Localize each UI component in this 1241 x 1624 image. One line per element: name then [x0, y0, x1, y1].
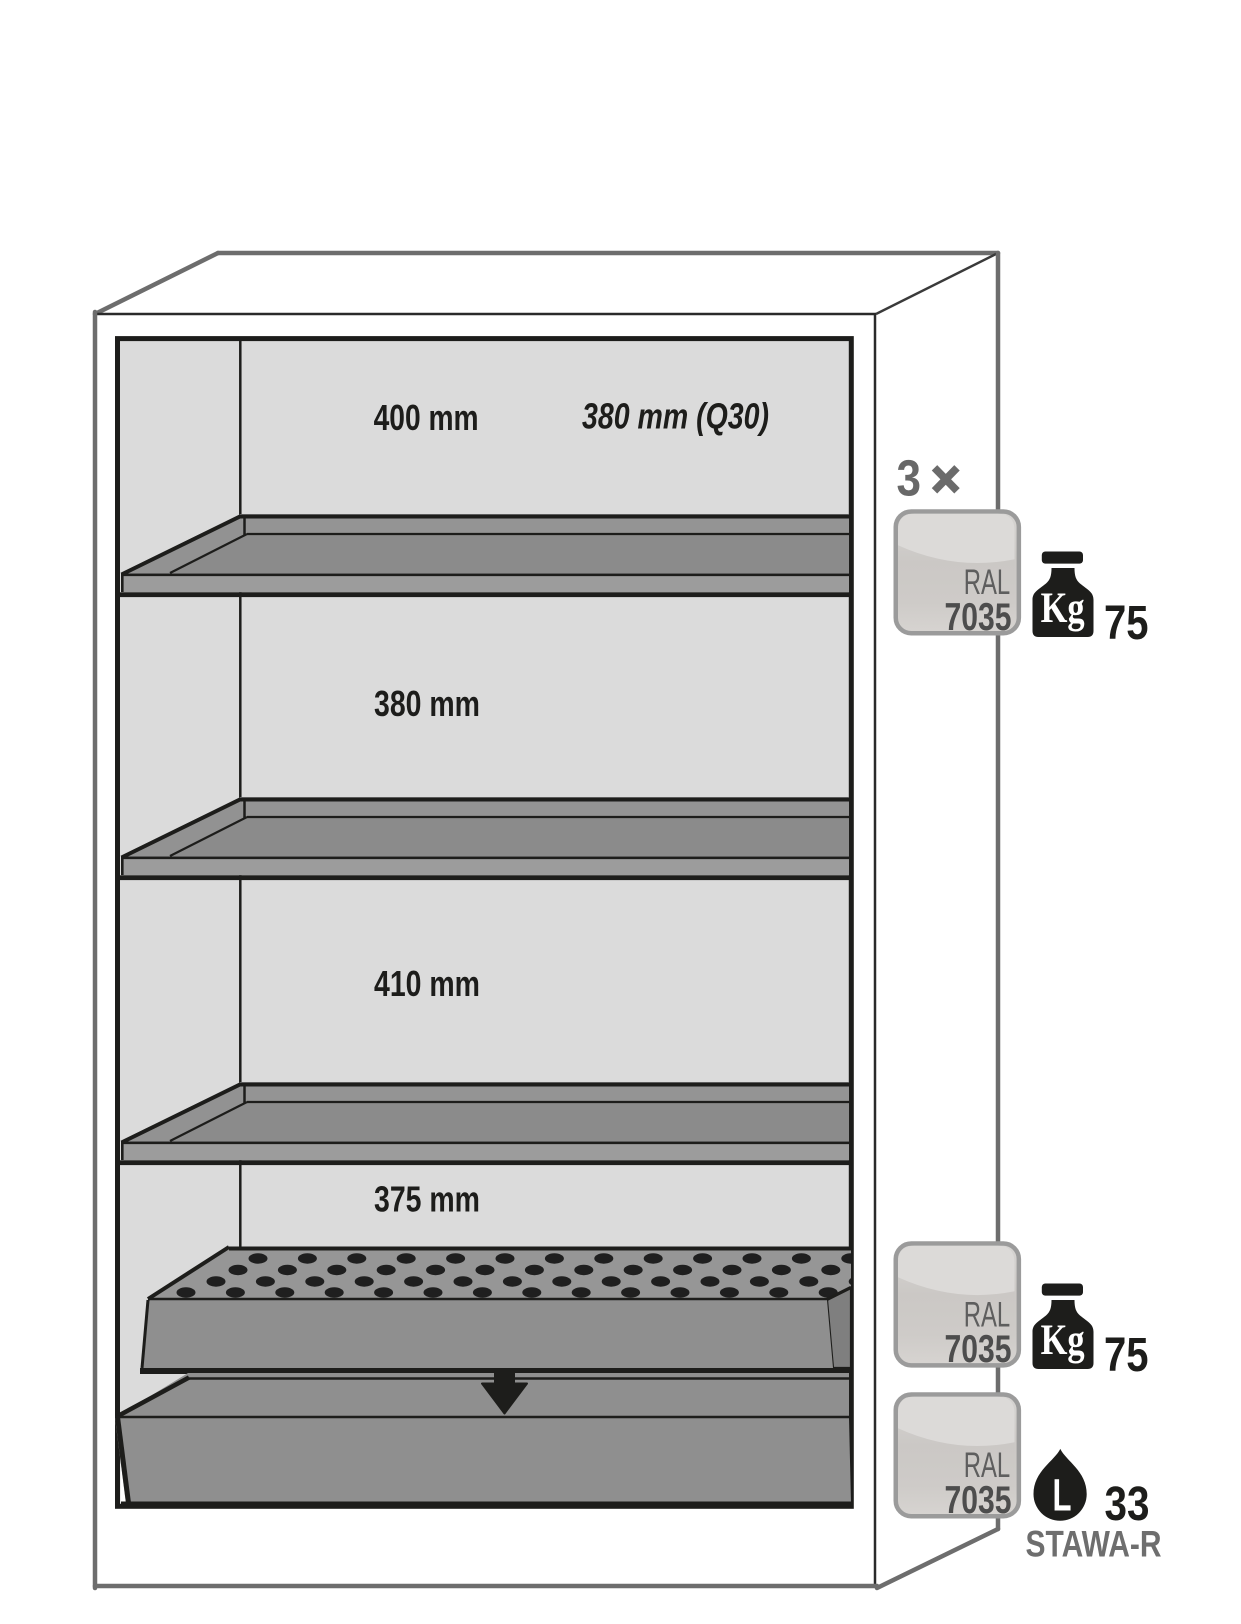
- svg-text:STAWA-R: STAWA-R: [1026, 1523, 1162, 1564]
- svg-text:400 mm: 400 mm: [374, 398, 479, 438]
- svg-text:3: 3: [897, 450, 922, 507]
- svg-text:380 mm: 380 mm: [374, 684, 480, 724]
- svg-text:Kg: Kg: [1041, 1317, 1085, 1364]
- svg-text:75: 75: [1104, 1328, 1149, 1382]
- svg-text:L: L: [1053, 1470, 1072, 1521]
- svg-text:375 mm: 375 mm: [374, 1180, 480, 1220]
- svg-text:410 mm: 410 mm: [374, 964, 480, 1004]
- svg-text:Kg: Kg: [1041, 585, 1085, 632]
- svg-text:7035: 7035: [945, 1479, 1012, 1522]
- svg-text:75: 75: [1104, 596, 1149, 650]
- svg-text:7035: 7035: [945, 596, 1012, 639]
- svg-text:380 mm (Q30): 380 mm (Q30): [582, 397, 769, 437]
- svg-text:7035: 7035: [945, 1328, 1012, 1371]
